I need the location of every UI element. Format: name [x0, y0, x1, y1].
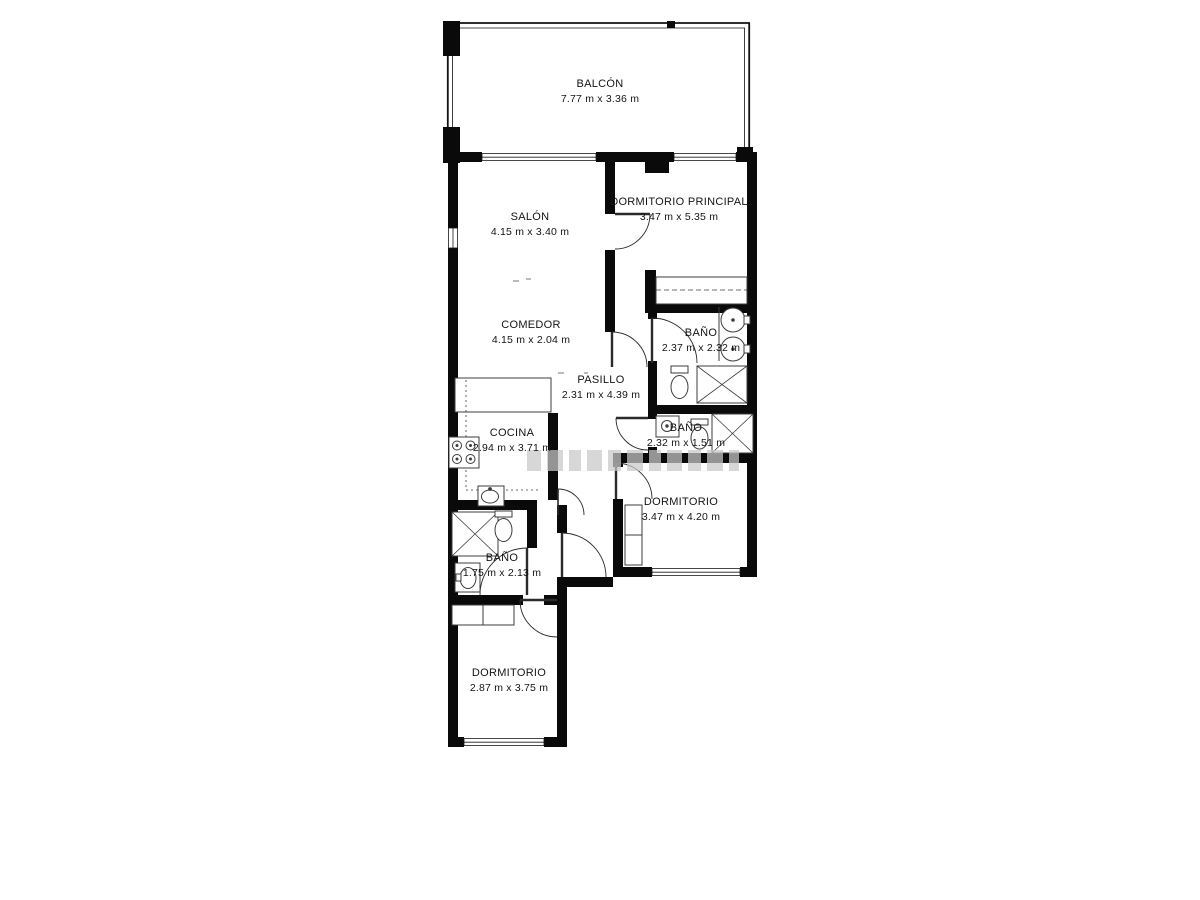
room-name: DORMITORIO: [642, 495, 720, 510]
room-dims: 2.94 m x 3.71 m: [473, 441, 551, 456]
room-name: BAÑO: [662, 326, 740, 341]
room-dims: 2.87 m x 3.75 m: [470, 681, 548, 696]
room-name: SALÓN: [491, 210, 569, 225]
room-label-banyo-3: BAÑO 1.75 m x 2.13 m: [463, 551, 541, 580]
room-dims: 3.47 m x 4.20 m: [642, 510, 720, 525]
room-name: BALCÓN: [561, 77, 639, 92]
room-dims: 4.15 m x 2.04 m: [492, 333, 570, 348]
bathroom1-fixtures: [671, 307, 750, 403]
room-label-pasillo: PASILLO 2.31 m x 4.39 m: [562, 373, 640, 402]
room-dims: 1.75 m x 2.13 m: [463, 566, 541, 581]
floor-plan-drawing: [0, 0, 1200, 900]
room-label-cocina: COCINA 2.94 m x 3.71 m: [473, 426, 551, 455]
room-label-dormitorio-principal: DORMITORIO PRINCIPAL 3.47 m x 5.35 m: [610, 195, 748, 224]
room-label-comedor: COMEDOR 4.15 m x 2.04 m: [492, 318, 570, 347]
room-name: BAÑO: [647, 421, 725, 436]
room-name: COMEDOR: [492, 318, 570, 333]
watermark: [527, 450, 739, 471]
room-label-balcon: BALCÓN 7.77 m x 3.36 m: [561, 77, 639, 106]
room-name: COCINA: [473, 426, 551, 441]
room-name: DORMITORIO: [470, 666, 548, 681]
wardrobe-lower-bedroom: [452, 605, 514, 625]
room-dims: 7.77 m x 3.36 m: [561, 92, 639, 107]
room-dims: 2.31 m x 4.39 m: [562, 388, 640, 403]
room-dims: 3.47 m x 5.35 m: [610, 210, 748, 225]
room-name: DORMITORIO PRINCIPAL: [610, 195, 748, 210]
wardrobe-main-bedroom: [656, 277, 747, 304]
room-dims: 4.15 m x 3.40 m: [491, 225, 569, 240]
wardrobe-mid-bedroom: [625, 505, 642, 565]
room-dims: 2.32 m x 1.51 m: [647, 436, 725, 451]
room-label-dormitorio-mid: DORMITORIO 3.47 m x 4.20 m: [642, 495, 720, 524]
room-label-banyo-1: BAÑO 2.37 m x 2.32 m: [662, 326, 740, 355]
floor-plan-page: BALCÓN 7.77 m x 3.36 m SALÓN 4.15 m x 3.…: [0, 0, 1200, 900]
room-label-dormitorio-lower: DORMITORIO 2.87 m x 3.75 m: [470, 666, 548, 695]
room-label-banyo-2: BAÑO 2.32 m x 1.51 m: [647, 421, 725, 450]
room-label-salon: SALÓN 4.15 m x 3.40 m: [491, 210, 569, 239]
room-name: PASILLO: [562, 373, 640, 388]
room-dims: 2.37 m x 2.32 m: [662, 341, 740, 356]
room-name: BAÑO: [463, 551, 541, 566]
